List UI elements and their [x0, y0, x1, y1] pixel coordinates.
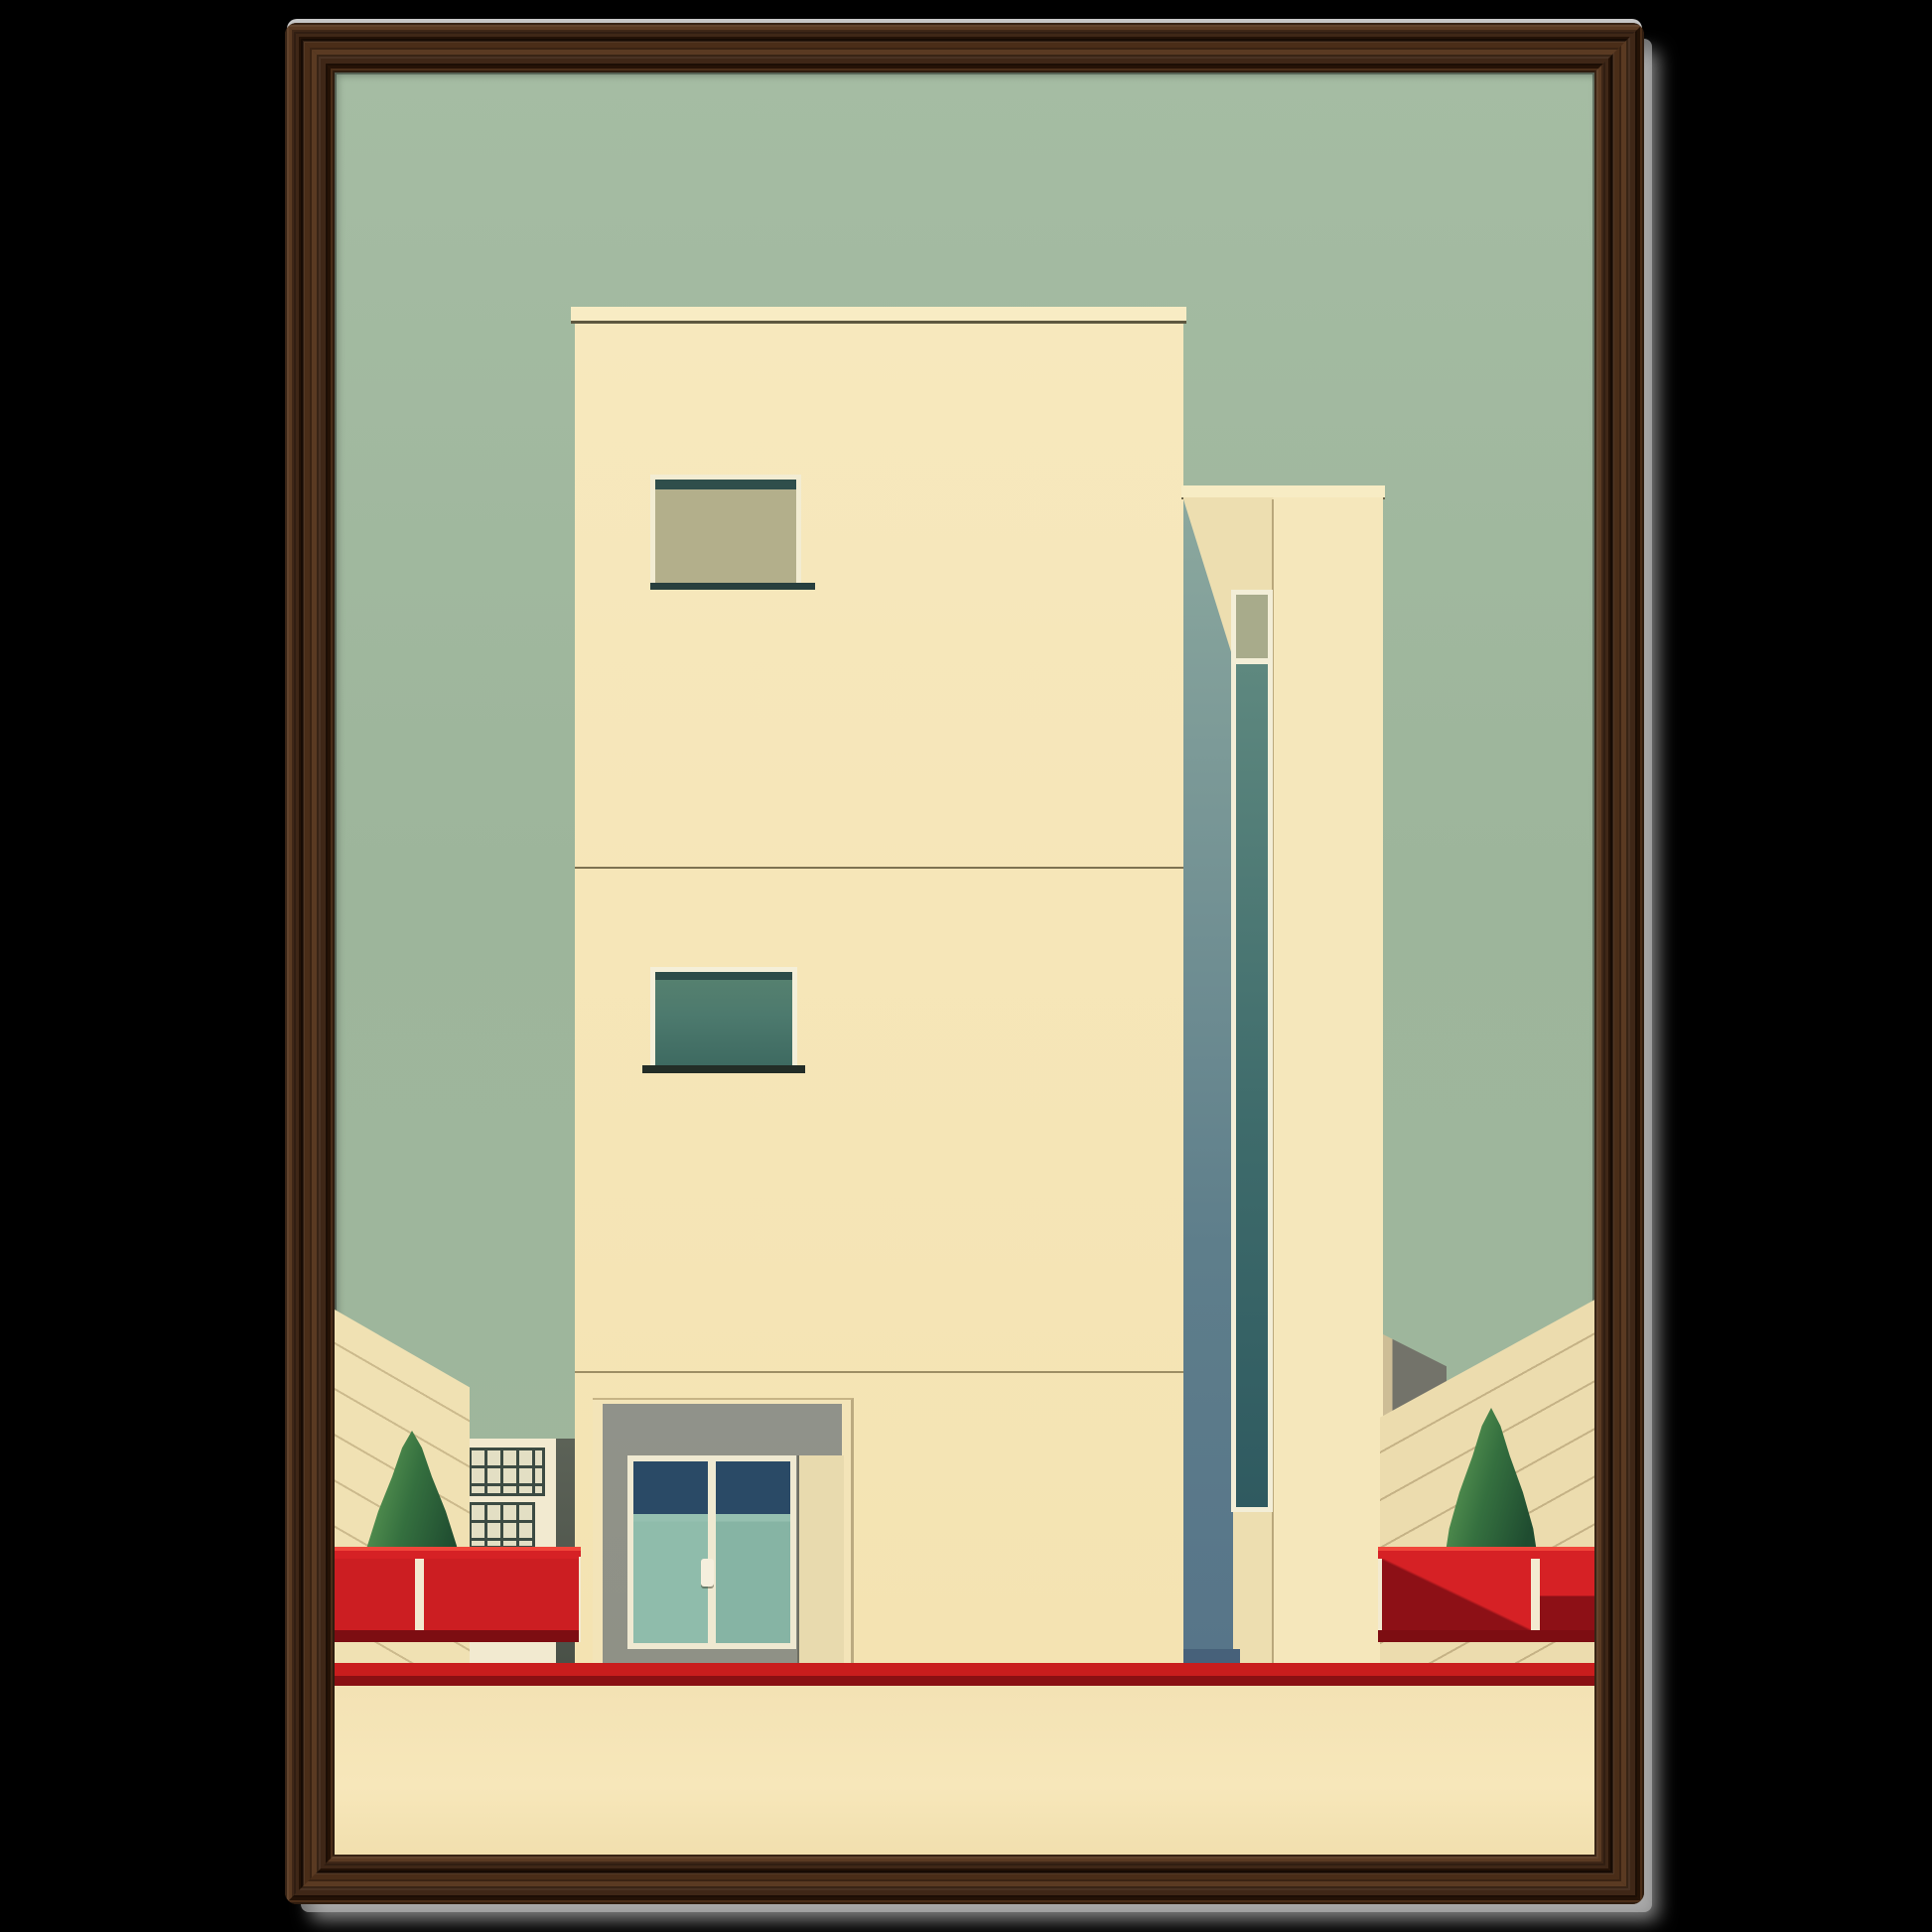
frame-bottom-rail — [285, 1855, 1644, 1904]
window-upper — [650, 475, 801, 588]
tower-strip-pane-lower — [1236, 664, 1268, 1507]
fence-panel — [424, 1559, 579, 1630]
fence-top-rail — [1378, 1547, 1594, 1559]
window-upper-glass — [655, 480, 796, 583]
door-handle — [701, 1559, 714, 1587]
frame-right-rail — [1594, 23, 1644, 1904]
tower-strip-pane-upper — [1236, 595, 1268, 658]
entrance-side-pillar — [797, 1455, 844, 1663]
framed-art-print — [285, 23, 1644, 1904]
red-curb-stripe — [335, 1663, 1594, 1676]
red-fence-left — [335, 1547, 581, 1642]
background-building-window-lower — [469, 1502, 535, 1549]
side-tower-shadow-face — [1183, 499, 1233, 1649]
window-middle-sill — [642, 1065, 805, 1073]
red-curb-stripe-shadow — [335, 1676, 1594, 1686]
courtyard-ground — [335, 1686, 1594, 1855]
fence-end-edge — [579, 1557, 581, 1642]
red-fence-right — [1378, 1547, 1594, 1642]
frame-top-rail — [285, 23, 1644, 72]
background-building-window-upper — [469, 1448, 545, 1496]
main-building-parapet-cap — [571, 307, 1186, 324]
page-background: { "artwork": { "kind": "framed art print… — [0, 0, 1932, 1932]
frame-left-rail — [285, 23, 335, 1904]
window-upper-sill — [650, 583, 815, 590]
window-middle-glass — [655, 972, 792, 1065]
fence-panel — [1540, 1559, 1594, 1630]
artwork-canvas — [335, 72, 1594, 1855]
fence-panel-shaded — [1382, 1559, 1531, 1630]
fence-bottom-lip — [1378, 1630, 1594, 1642]
door-leaf-right-glass — [716, 1461, 790, 1643]
double-door — [627, 1455, 796, 1649]
tower-window-strip — [1231, 590, 1273, 1512]
fence-panel — [335, 1559, 415, 1630]
door-leaf-left-glass — [633, 1461, 708, 1643]
fence-bottom-lip — [335, 1630, 581, 1642]
fence-top-rail — [335, 1547, 581, 1559]
window-middle — [650, 967, 797, 1070]
main-building-floor-line — [575, 867, 1183, 869]
main-building-reveal-line — [575, 1371, 1183, 1373]
